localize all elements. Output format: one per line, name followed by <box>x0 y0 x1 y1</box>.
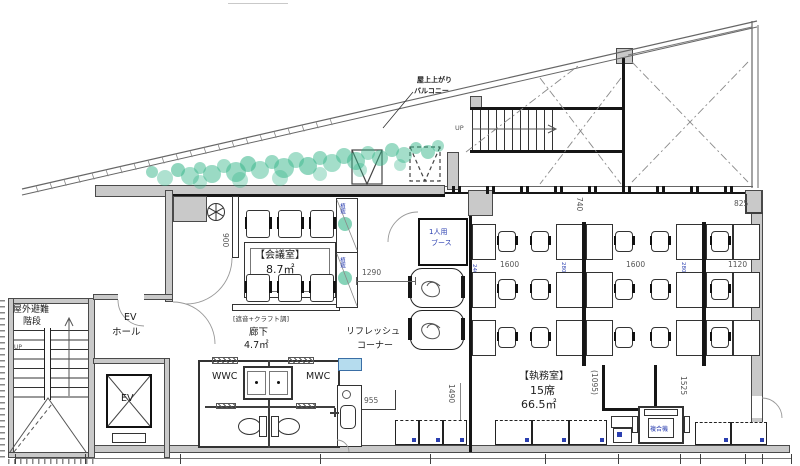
ev-hall-label-2: ホール <box>112 328 141 338</box>
desk <box>676 224 703 260</box>
wwc-label: WWC <box>212 372 237 382</box>
meeting-chair <box>310 210 334 238</box>
slope-hatch-tick <box>176 154 178 161</box>
dim-tick <box>745 454 746 464</box>
dim-1600-a: 1600 <box>500 260 519 269</box>
meeting-wall-left <box>232 196 239 258</box>
stairwell-label-1: 屋外避難 <box>13 306 49 316</box>
right-wall-door-gap <box>752 396 762 418</box>
window-mullion <box>452 186 455 194</box>
slope-hatch-tick <box>260 135 262 142</box>
west-wall <box>165 190 173 302</box>
dim-tick <box>700 454 701 464</box>
balcony-stair-treads <box>472 110 558 150</box>
meeting-chair <box>278 210 302 238</box>
meeting-room-note: [遮音+クラフト調] <box>233 313 289 323</box>
stair-ev-wall <box>88 298 95 458</box>
low-cabinet <box>569 420 607 445</box>
window-mullion <box>526 186 529 194</box>
greenery-blob <box>272 170 288 186</box>
office-chair <box>498 279 516 300</box>
office-seats: 15席 <box>530 385 555 397</box>
stair-treads <box>14 330 88 398</box>
window-mullion <box>622 186 625 194</box>
desk-partition <box>582 222 586 366</box>
slope-hatch-tick <box>64 179 66 186</box>
stair-wall-top <box>8 298 94 304</box>
dim-tick <box>85 454 86 464</box>
lounge-arm-1a <box>408 276 412 298</box>
window-mullion <box>486 186 489 194</box>
toilet-2-bowl <box>277 418 300 435</box>
slope-hatch-tick <box>288 128 290 135</box>
mwc-door-hatch <box>288 357 314 364</box>
slope-hatch-tick <box>92 173 94 180</box>
slope-hatch-tick <box>246 138 248 145</box>
dim955-line-h <box>362 409 396 410</box>
greenery-blob <box>313 167 327 181</box>
slope-line-inner <box>22 27 757 195</box>
main-top-wall-edge <box>166 194 445 197</box>
desk <box>676 320 703 356</box>
desk <box>733 320 760 356</box>
meeting-chair <box>278 274 302 302</box>
slope-hatch-tick <box>106 170 108 177</box>
site-ticks-bottomleft <box>8 459 94 464</box>
top-faint-mark <box>228 3 288 4</box>
dim-825: 825 <box>734 199 748 208</box>
planter-green-1 <box>338 217 352 231</box>
desk <box>556 224 583 260</box>
low-cabinet <box>731 422 767 445</box>
office-chair <box>651 231 669 252</box>
planter-label-2: 植栽 <box>338 257 346 268</box>
desk <box>586 320 613 356</box>
ev-hall-door-gap <box>118 294 144 300</box>
slope-line-outer <box>22 21 757 189</box>
slope-hatch-tick <box>274 131 276 138</box>
greenery-blob <box>193 175 207 189</box>
low-cabinet <box>532 420 569 445</box>
dim-tick <box>430 454 431 464</box>
office-chair <box>531 231 549 252</box>
counter-highlight <box>338 358 362 371</box>
lounge-chair-1 <box>410 268 464 308</box>
window-mullion <box>656 186 659 194</box>
low-cabinet <box>443 420 467 445</box>
meeting-chair <box>310 274 334 302</box>
office-chair <box>615 327 633 348</box>
desk <box>472 224 496 260</box>
ev-hall-label-1: EV <box>124 313 137 323</box>
asterisk-symbol <box>208 204 225 221</box>
toilet-1-bowl <box>238 418 261 435</box>
dim-tick <box>180 454 181 464</box>
sk-basin <box>342 390 351 399</box>
slope-hatch-tick <box>36 186 38 193</box>
meeting-wall-bottom <box>232 304 340 311</box>
balcony-up-label: UP <box>455 124 464 132</box>
window-mullion <box>588 186 591 194</box>
stair-chevron <box>10 398 86 452</box>
desk <box>733 224 760 260</box>
office-title: 【執務室】 <box>519 371 569 382</box>
stair-stringer <box>44 328 51 400</box>
slope-hatch-tick <box>330 119 332 126</box>
window-mullion <box>690 186 693 194</box>
office-chair <box>531 327 549 348</box>
printer-mark <box>617 432 622 437</box>
office-chair <box>615 231 633 252</box>
slope-hatch-tick <box>316 122 318 128</box>
low-cabinet <box>695 422 731 445</box>
slope-hatch-tick <box>204 147 206 154</box>
corridor-title: 廊下 <box>249 328 268 338</box>
refresh-label-2: コーナー <box>357 342 393 352</box>
office-door-arc <box>388 212 418 242</box>
lounge-arm-1b <box>461 276 465 298</box>
stair-up-label: UP <box>14 344 22 351</box>
balcony-note-line2: バルコニー <box>414 88 449 96</box>
lounge-arm-2a <box>408 318 412 340</box>
wall-nib-entry <box>173 196 207 222</box>
desk <box>556 320 583 356</box>
printer-stand <box>613 428 632 443</box>
office-chair <box>651 279 669 300</box>
dashdot-x2b <box>632 62 748 182</box>
desk <box>733 272 760 308</box>
stairwell-label-2: 階段 <box>23 318 41 328</box>
copier-tray-right <box>684 416 690 433</box>
desk <box>586 224 613 260</box>
dim-tick <box>618 454 619 464</box>
slope-hatch-tick <box>78 176 80 183</box>
dim955-line-v <box>395 390 396 410</box>
dim1290-tick-b <box>415 277 416 285</box>
office-chair <box>615 279 633 300</box>
desk-partition <box>702 222 706 366</box>
stair-chevron-dash <box>14 404 52 452</box>
booth-label-2: ブース <box>431 238 452 248</box>
dim-1600-b: 1600 <box>626 260 645 269</box>
slope-line-3 <box>628 27 752 55</box>
window-mullion <box>696 186 699 194</box>
desk <box>472 272 496 308</box>
dim-1290: 1290 <box>362 268 381 277</box>
office-area: 66.5㎡ <box>521 399 557 411</box>
toilet-1-tank <box>259 416 267 437</box>
slope-hatch-tick <box>120 167 122 174</box>
slope-hatch-tick <box>190 151 192 158</box>
office-step-line-h <box>745 212 763 214</box>
corridor-door-arc <box>173 302 215 344</box>
slope-hatch-tick <box>232 141 234 148</box>
slope-hatch-tick <box>218 144 220 151</box>
floor-plan: 屋上上がり バルコニー UP 屋外避難 階段 UP EV ホール EV 【会議室… <box>0 0 800 466</box>
corridor-area: 4.7㎡ <box>244 341 269 351</box>
ev-car-label: EV <box>121 394 134 404</box>
dim-1095: (1095) <box>590 370 599 395</box>
site-ticks-left <box>0 300 5 458</box>
greenery-blob <box>232 172 248 188</box>
dashdot-x2a <box>632 62 748 182</box>
printer-stand-top <box>611 416 634 428</box>
balcony-column <box>616 48 633 64</box>
dim-900: 900 <box>221 233 230 247</box>
slope-hatch-tick <box>302 125 304 132</box>
dim1290-tick-a <box>356 277 357 285</box>
faucet-1 <box>255 381 258 384</box>
site-dim-line <box>15 458 792 459</box>
copier-tray-left <box>632 416 638 433</box>
pier-office-left <box>468 190 493 216</box>
window-mullion <box>458 186 461 194</box>
lounge-arm-2b <box>461 318 465 340</box>
planter-label-1: 植栽 <box>338 203 346 214</box>
window-mullion <box>492 186 495 194</box>
low-cabinet <box>395 420 419 445</box>
desk <box>556 272 583 308</box>
slope-hatch-tick <box>134 163 136 170</box>
dim-1490: 1490 <box>447 384 456 403</box>
planter-green-2 <box>338 271 352 285</box>
dim-955: 955 <box>364 396 378 405</box>
low-cabinet <box>419 420 443 445</box>
office-chair <box>711 231 729 252</box>
dim-tick <box>762 454 763 464</box>
stall-hatch-1 <box>216 403 236 409</box>
slope-hatch-tick <box>50 183 52 190</box>
window-mullion <box>594 186 597 194</box>
exterior-door-arc <box>762 398 782 418</box>
desk <box>676 272 703 308</box>
window-mullion <box>560 186 563 194</box>
window-mullion <box>554 186 557 194</box>
booth-label-1: 1人用 <box>429 227 447 237</box>
window-mullion <box>724 186 727 194</box>
dim1290-line <box>356 281 416 282</box>
mwc-label: MWC <box>306 372 330 382</box>
wwc-door-hatch <box>212 357 238 364</box>
balcony-stair-bottom-wall <box>470 150 623 153</box>
ev-wall-top <box>93 358 170 364</box>
dim-740: 740 <box>575 197 584 211</box>
window-mullion <box>730 186 733 194</box>
greenery-blob <box>394 159 406 171</box>
planter-divider <box>336 252 358 253</box>
office-chair <box>651 327 669 348</box>
faucet-2 <box>277 381 280 384</box>
refresh-label-1: リフレッシュ <box>346 328 400 338</box>
slope-hatch-tick <box>162 157 164 164</box>
sk-cross-v <box>334 408 336 417</box>
office-chair <box>498 231 516 252</box>
lounge-chair-2 <box>410 310 464 350</box>
window-mullion <box>662 186 665 194</box>
meeting-chair <box>246 210 270 238</box>
greenery-blob <box>432 140 444 152</box>
dim-tick <box>791 454 792 464</box>
dim-1120: 1120 <box>728 260 747 269</box>
office-chair <box>531 279 549 300</box>
office-chair <box>498 327 516 348</box>
window-mullion <box>520 186 523 194</box>
note-leader <box>383 92 413 128</box>
low-cabinet <box>495 420 532 445</box>
dim-tick <box>15 454 16 464</box>
ev-door-sill <box>112 433 146 443</box>
copier-top <box>644 409 678 416</box>
wall-stub-top <box>447 152 459 190</box>
dim-tick <box>680 454 681 464</box>
office-lwall-v2 <box>654 365 657 410</box>
dim-tick <box>320 454 321 464</box>
sk-sink <box>340 405 356 429</box>
window-mullion <box>628 186 631 194</box>
meeting-room-title: 【会議室】 <box>255 250 305 261</box>
desk <box>472 320 496 356</box>
dim-tick <box>545 454 546 464</box>
meeting-door-arc <box>186 258 232 304</box>
office-chair <box>711 327 729 348</box>
dim-1525: 1525 <box>679 376 688 395</box>
meeting-chair <box>246 274 270 302</box>
greenery-blob <box>353 163 367 177</box>
copier-label: 複合機 <box>650 424 668 433</box>
office-lwall-v1 <box>602 365 605 411</box>
toilet-2-tank <box>271 416 279 437</box>
stall-hatch-2 <box>296 403 316 409</box>
ev-wall-right <box>164 358 170 458</box>
desk <box>586 272 613 308</box>
balcony-wall-v <box>622 58 625 188</box>
balcony-note-line1: 屋上上がり <box>417 77 452 85</box>
office-chair <box>711 279 729 300</box>
